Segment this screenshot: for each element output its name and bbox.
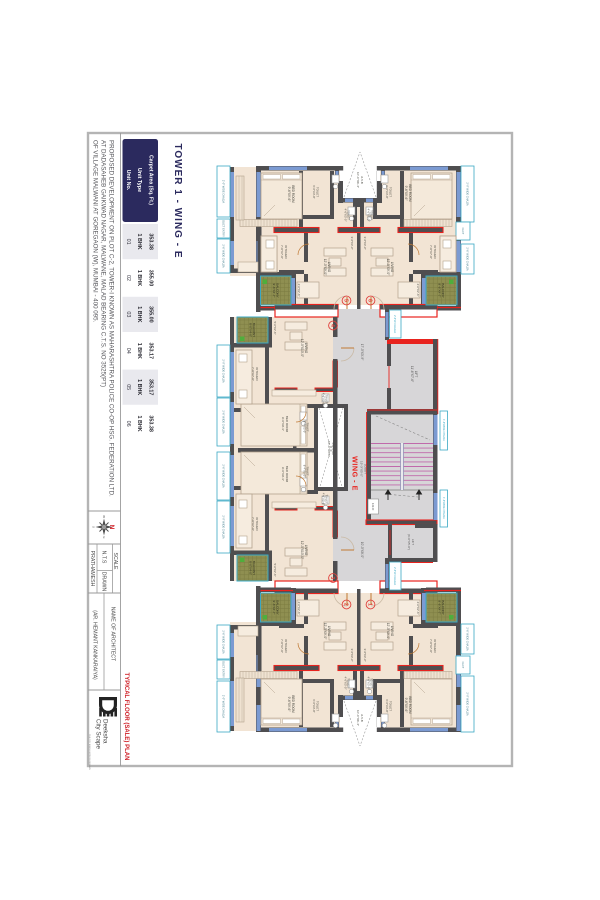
- svg-text:1 BHK: 1 BHK: [136, 234, 142, 250]
- svg-text:PRATHAMESH: PRATHAMESH: [89, 551, 95, 587]
- svg-text:9′-6″X9′-3″: 9′-6″X9′-3″: [281, 467, 285, 481]
- svg-text:03: 03: [125, 311, 131, 317]
- svg-text:2′-6″W CHAJJA: 2′-6″W CHAJJA: [393, 315, 397, 333]
- svg-text:10′-0″X6′-4″: 10′-0″X6′-4″: [356, 172, 360, 189]
- svg-text:353.38: 353.38: [147, 233, 153, 250]
- svg-text:2′-0″ WIDE CHAJJA: 2′-0″ WIDE CHAJJA: [222, 359, 226, 382]
- svg-text:2: 2: [343, 603, 349, 606]
- svg-text:TOWER 1 - WING - E: TOWER 1 - WING - E: [172, 143, 183, 258]
- svg-text:2′-6″ WIDE CHAJJA: 2′-6″ WIDE CHAJJA: [222, 464, 226, 487]
- svg-text:6′-4″X3′-0″: 6′-4″X3′-0″: [302, 465, 306, 478]
- svg-text:DUCT: DUCT: [461, 662, 464, 669]
- svg-text:Unit No.: Unit No.: [125, 170, 131, 191]
- svg-text:7′-0″X7′-0″: 7′-0″X7′-0″: [280, 245, 284, 259]
- svg-text:2′-0″ WIDE CHAJJA: 2′-0″ WIDE CHAJJA: [222, 180, 226, 203]
- svg-text:2′-6″ WIDE CHAJJA: 2′-6″ WIDE CHAJJA: [222, 630, 226, 653]
- svg-text:9′-6″X4′-7″: 9′-6″X4′-7″: [438, 284, 442, 298]
- svg-text:9′-6″X9′-3″: 9′-6″X9′-3″: [281, 417, 285, 431]
- svg-text:9′-6″X4′-7″: 9′-6″X4′-7″: [272, 601, 276, 615]
- svg-text:4′-6″X3′-0″: 4′-6″X3′-0″: [343, 677, 347, 690]
- svg-text:353.38: 353.38: [147, 415, 153, 432]
- svg-text:PROPOSED DEVELOPMENT ON PLOT C: PROPOSED DEVELOPMENT ON PLOT C-2, TOWER-…: [107, 140, 114, 497]
- svg-text:2′-6″ WIDE CHAJJA: 2′-6″ WIDE CHAJJA: [222, 244, 226, 267]
- svg-text:DUCT ENTRY: DUCT ENTRY: [222, 661, 226, 678]
- svg-text:9′-6″X9′-6″: 9′-6″X9′-6″: [287, 187, 291, 203]
- svg-text:(AR. HEMANT KANKARAIYA): (AR. HEMANT KANKARAIYA): [92, 610, 98, 680]
- svg-text:2′-0″ WIDE CHAJJA: 2′-0″ WIDE CHAJJA: [466, 182, 470, 205]
- svg-text:4′-6″X3′-6″: 4′-6″X3′-6″: [321, 393, 325, 406]
- svg-text:7′-0″X7′-0″: 7′-0″X7′-0″: [429, 639, 433, 653]
- svg-text:3: 3: [329, 577, 335, 580]
- svg-text:6′-6″X3′-0″: 6′-6″X3′-0″: [312, 699, 316, 712]
- svg-text:355.00: 355.00: [147, 306, 153, 323]
- svg-text:5′-0″X2′-6″: 5′-0″X2′-6″: [273, 322, 277, 335]
- svg-text:1 BHK: 1 BHK: [136, 306, 142, 322]
- svg-text:11′-6″X7′-6″: 11′-6″X7′-6″: [410, 366, 414, 383]
- svg-text:1 BHK: 1 BHK: [136, 379, 142, 395]
- svg-text:THE CITY RISES LIMITLESS DREAM: THE CITY RISES LIMITLESS DREAMS: [88, 734, 91, 770]
- svg-text:3′-6″X3′-3″: 3′-6″X3′-3″: [363, 237, 367, 250]
- svg-text:OF VILLAGE MALWANI AT GOREGAON: OF VILLAGE MALWANI AT GOREGAON (W), MUMB…: [91, 140, 98, 323]
- svg-text:S: S: [91, 526, 95, 528]
- svg-text:4′-0″X2′-6″: 4′-0″X2′-6″: [416, 284, 420, 297]
- svg-text:04: 04: [125, 348, 131, 354]
- svg-text:2′-0″ WIDE CHAJJA: 2′-0″ WIDE CHAJJA: [466, 692, 470, 715]
- svg-text:2′-6″ WIDE CHAJJA: 2′-6″ WIDE CHAJJA: [222, 410, 226, 433]
- svg-text:8′-0″X4′-0″: 8′-0″X4′-0″: [249, 323, 253, 337]
- svg-text:10′-0″X3′-0″: 10′-0″X3′-0″: [327, 441, 331, 458]
- svg-text:4′-6″X3′-0″: 4′-6″X3′-0″: [343, 209, 347, 222]
- svg-text:9′-6″X9′-6″: 9′-6″X9′-6″: [404, 698, 408, 714]
- svg-text:3′-6″X3′-3″: 3′-6″X3′-3″: [350, 237, 354, 250]
- svg-text:Deeksha: Deeksha: [101, 719, 108, 744]
- svg-text:DRAWN: DRAWN: [101, 572, 107, 592]
- svg-text:N.T.S: N.T.S: [101, 551, 107, 564]
- svg-text:4′-0″X2′-6″: 4′-0″X2′-6″: [416, 602, 420, 615]
- svg-text:4′-6″X3′-6″: 4′-6″X3′-6″: [321, 493, 325, 506]
- svg-text:3′-6″X3′-3″: 3′-6″X3′-3″: [363, 649, 367, 662]
- svg-text:12′-0″X10′-0″: 12′-0″X10′-0″: [300, 339, 304, 358]
- svg-text:9′-6″X4′-7″: 9′-6″X4′-7″: [272, 284, 276, 298]
- svg-text:F.R.D: F.R.D: [371, 503, 375, 511]
- svg-text:W: W: [102, 515, 106, 518]
- svg-text:355.00: 355.00: [147, 270, 153, 287]
- svg-text:7′-0″X7′-0″: 7′-0″X7′-0″: [429, 245, 433, 259]
- svg-text:4: 4: [329, 324, 335, 327]
- svg-text:DUCT ENTRY: DUCT ENTRY: [222, 220, 226, 237]
- svg-text:TYPICAL FLOOR (SALE) PLAN: TYPICAL FLOOR (SALE) PLAN: [123, 673, 129, 761]
- svg-text:01: 01: [125, 239, 131, 245]
- svg-text:1 BHK: 1 BHK: [136, 343, 142, 359]
- svg-text:E: E: [102, 536, 106, 538]
- svg-text:7′-0″X7′-0″: 7′-0″X7′-0″: [251, 367, 255, 381]
- svg-text:1′-6″WIDE CHAJJA: 1′-6″WIDE CHAJJA: [442, 497, 445, 519]
- svg-text:5: 5: [343, 299, 349, 302]
- svg-text:8′-0″X4′-0″: 8′-0″X4′-0″: [249, 561, 253, 575]
- svg-text:4′-0″X2′-6″: 4′-0″X2′-6″: [297, 602, 301, 615]
- svg-text:05: 05: [125, 384, 131, 390]
- svg-text:12′-0″X9′-0″: 12′-0″X9′-0″: [323, 259, 327, 276]
- svg-text:9′-6″X4′-7″: 9′-6″X4′-7″: [438, 601, 442, 615]
- svg-text:12′-0″X9′-0″: 12′-0″X9′-0″: [386, 259, 390, 276]
- svg-text:SCALE: SCALE: [112, 552, 118, 570]
- svg-text:10′-0″X8′-0″: 10′-0″X8′-0″: [360, 542, 364, 559]
- svg-text:Unit Type: Unit Type: [136, 168, 142, 192]
- svg-text:9′-6″X9′-6″: 9′-6″X9′-6″: [404, 186, 408, 202]
- svg-text:12′-0″X9′-0″: 12′-0″X9′-0″: [386, 623, 390, 640]
- svg-text:1: 1: [367, 603, 373, 606]
- svg-text:6′-6″X3′-0″: 6′-6″X3′-0″: [312, 185, 316, 198]
- svg-text:4′-6″X3′-0″: 4′-6″X3′-0″: [366, 677, 370, 690]
- svg-text:5′-0″X2′-6″: 5′-0″X2′-6″: [273, 564, 277, 577]
- svg-text:N: N: [108, 525, 115, 530]
- svg-text:(6′-0″X5′-0″): (6′-0″X5′-0″): [407, 534, 411, 550]
- svg-text:WING - E: WING - E: [351, 456, 360, 491]
- svg-text:2′-6″W CHAJJA: 2′-6″W CHAJJA: [393, 567, 397, 585]
- svg-text:4′-0″X2′-6″: 4′-0″X2′-6″: [297, 284, 301, 297]
- svg-text:2′-0″ WIDE CHAJJA: 2′-0″ WIDE CHAJJA: [222, 695, 226, 718]
- svg-text:9′-6″X9′-6″: 9′-6″X9′-6″: [287, 697, 291, 713]
- svg-text:10′-0″X6′-4″: 10′-0″X6′-4″: [356, 710, 360, 727]
- svg-text:1′-6″WIDE CHAJJA: 1′-6″WIDE CHAJJA: [442, 419, 445, 441]
- svg-text:2′-6″ WIDE CHAJJA: 2′-6″ WIDE CHAJJA: [466, 247, 470, 270]
- svg-text:DUCT: DUCT: [461, 228, 464, 235]
- svg-text:12′-0″X10′-0″: 12′-0″X10′-0″: [300, 541, 304, 560]
- svg-text:6′-6″X3′-0″: 6′-6″X3′-0″: [385, 699, 389, 712]
- svg-text:NAME OF ARCHITECT: NAME OF ARCHITECT: [110, 607, 116, 662]
- svg-text:4′-6″X3′-0″: 4′-6″X3′-0″: [366, 209, 370, 222]
- svg-text:12′-0″X9′-0″: 12′-0″X9′-0″: [323, 623, 327, 640]
- svg-text:353.17: 353.17: [147, 379, 153, 396]
- svg-text:1 BHK: 1 BHK: [136, 270, 142, 286]
- svg-text:1 BHK: 1 BHK: [136, 416, 142, 432]
- svg-text:City Scape: City Scape: [94, 719, 101, 749]
- svg-text:6′-4″X3′-0″: 6′-4″X3′-0″: [302, 421, 306, 434]
- svg-text:AT DADASAHEB GAIKWAD NAGAR, MA: AT DADASAHEB GAIKWAD NAGAR, MALWANE, MAL…: [99, 140, 106, 387]
- svg-text:353.17: 353.17: [147, 343, 153, 360]
- svg-text:06: 06: [125, 421, 131, 427]
- svg-text:Carpet Area (Sq. Ft.): Carpet Area (Sq. Ft.): [147, 155, 153, 205]
- svg-text:17′-0″X3′-9″: 17′-0″X3′-9″: [360, 344, 364, 361]
- svg-text:6′-6″X3′-0″: 6′-6″X3′-0″: [385, 185, 389, 198]
- svg-text:6: 6: [367, 299, 373, 302]
- svg-text:3′-6″X3′-3″: 3′-6″X3′-3″: [350, 649, 354, 662]
- svg-text:7′-0″X7′-0″: 7′-0″X7′-0″: [251, 517, 255, 531]
- svg-text:2′-0″ WIDE CHAJJA: 2′-0″ WIDE CHAJJA: [222, 515, 226, 538]
- svg-text:7′-0″X7′-0″: 7′-0″X7′-0″: [280, 639, 284, 653]
- svg-text:19′-3″X5′-0″: 19′-3″X5′-0″: [360, 461, 364, 478]
- svg-text:2′-6″ WIDE CHAJJA: 2′-6″ WIDE CHAJJA: [466, 627, 470, 650]
- svg-text:02: 02: [125, 275, 131, 281]
